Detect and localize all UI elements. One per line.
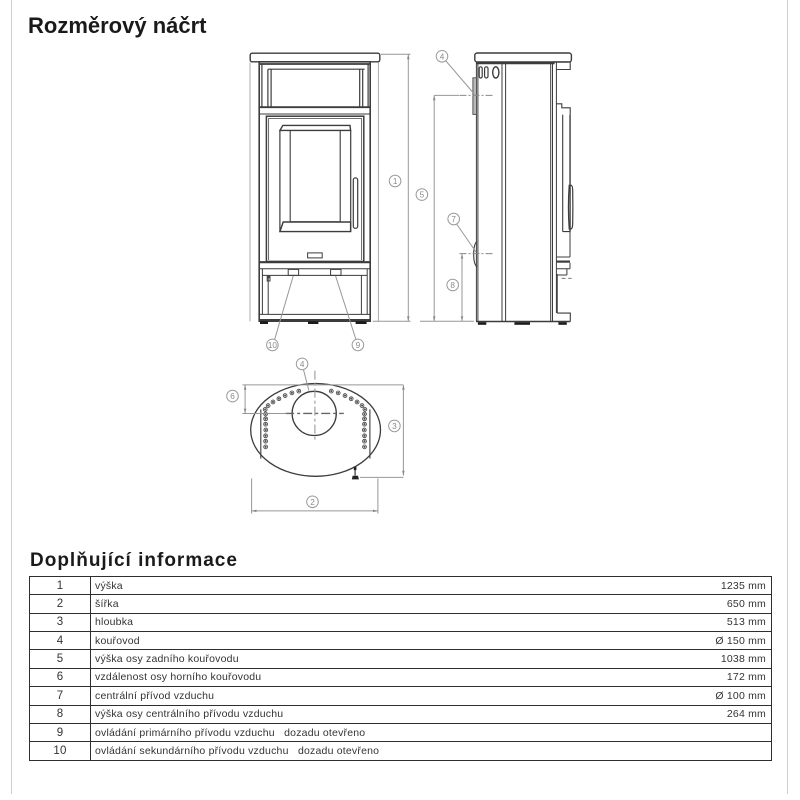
svg-text:7: 7	[451, 215, 456, 224]
svg-text:3: 3	[392, 422, 397, 431]
svg-text:4: 4	[300, 360, 305, 369]
svg-text:6: 6	[230, 392, 235, 401]
svg-text:4: 4	[440, 52, 445, 61]
svg-text:8: 8	[450, 281, 455, 290]
svg-text:5: 5	[420, 191, 425, 200]
svg-text:10: 10	[268, 341, 278, 350]
svg-text:9: 9	[356, 341, 361, 350]
svg-text:2: 2	[310, 498, 315, 507]
svg-text:1: 1	[393, 177, 398, 186]
